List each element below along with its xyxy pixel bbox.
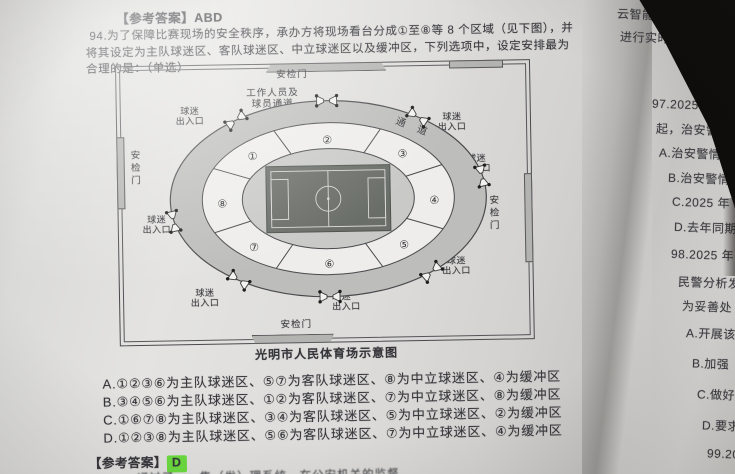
- previous-answer-line: 【参考答案】ABD: [116, 6, 223, 27]
- option-b-label: B.: [103, 394, 117, 409]
- section-3: ③: [398, 148, 408, 160]
- right-fragment: A.开展该: [686, 324, 735, 343]
- section-8: ⑧: [217, 198, 227, 210]
- right-fragment: 为妥善处: [682, 297, 733, 316]
- option-c-label: C.: [103, 412, 118, 427]
- right-fragment: D.要求: [702, 416, 735, 434]
- security-gate-bar-bottom: [252, 334, 334, 344]
- page-edge-shadow: [723, 198, 735, 276]
- security-gate-label-left: 安检门: [127, 150, 139, 188]
- security-gate-label-top: 安检门: [276, 70, 308, 81]
- option-a-label: A.: [102, 376, 116, 391]
- answer-value: ABD: [194, 10, 223, 24]
- football-field: [266, 165, 391, 233]
- answer-label: 【参考答案】: [89, 456, 167, 471]
- section-4: ④: [429, 195, 439, 207]
- section-7: ⑦: [249, 242, 259, 254]
- section-2: ②: [322, 135, 332, 147]
- section-6: ⑥: [324, 259, 334, 271]
- stadium-svg: ① ② ③ ④ ⑤ ⑥ ⑦ ⑧ 通 道: [144, 89, 512, 309]
- section-1: ①: [248, 151, 258, 163]
- section-5: ⑤: [399, 239, 409, 251]
- stadium-diagram-box: 安检门 安检门 安检门 安检门 工作人员及 球员通道 球迷 出入口 球迷 出入口…: [115, 59, 535, 346]
- left-page: 【参考答案】ABD 94.为了保障比赛现场的安全秩序，承办方将现场看台分成①至⑧…: [0, 0, 735, 474]
- security-gate-bar-top-right: [449, 60, 503, 69]
- photographed-exam-page: 【参考答案】ABD 94.为了保障比赛现场的安全秩序，承办方将现场看台分成①至⑧…: [0, 0, 735, 474]
- right-fragment: 99.20: [707, 446, 735, 461]
- security-gate-label-bottom: 安检门: [280, 320, 312, 331]
- answer-label: 【参考答案】: [116, 11, 194, 26]
- right-fragment: C.做好: [697, 385, 735, 403]
- security-gate-bar-right: [524, 173, 534, 262]
- security-gate-bar-left: [116, 137, 125, 209]
- option-d-label: D.: [103, 430, 118, 445]
- right-fragment: B.加强: [692, 354, 730, 372]
- option-d-text: ①②③⑧为主队球迷区、⑤⑥为客队球迷区、⑦为中立球迷区、④为缓冲区: [118, 423, 563, 446]
